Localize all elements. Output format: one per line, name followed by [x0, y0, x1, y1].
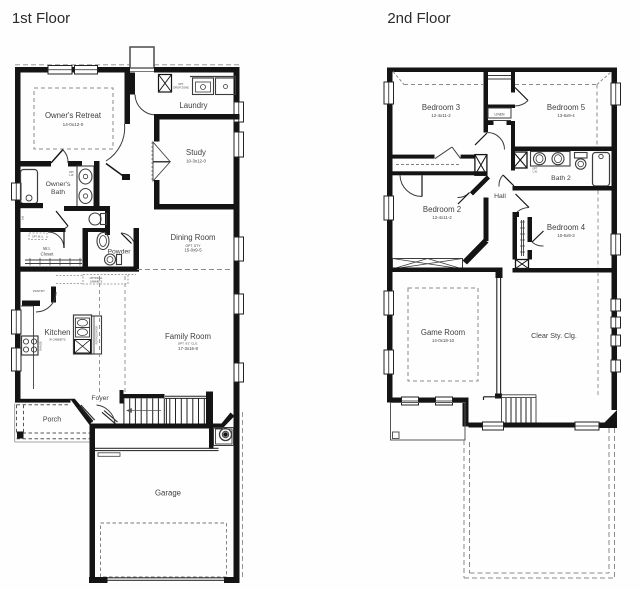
svg-text:2nd Floor: 2nd Floor — [387, 10, 450, 27]
svg-text:Clear Sty. Clg.: Clear Sty. Clg. — [531, 331, 577, 340]
svg-text:Owner's: Owner's — [46, 181, 71, 188]
svg-text:RANGE: RANGE — [39, 341, 43, 350]
svg-text:Study: Study — [186, 148, 206, 157]
svg-text:L.W.: L.W. — [533, 171, 538, 174]
svg-text:15-0x9-5: 15-0x9-5 — [184, 248, 202, 253]
svg-text:Bedroom 5: Bedroom 5 — [547, 103, 586, 112]
svg-text:Bedroom 3: Bedroom 3 — [422, 103, 460, 112]
svg-text:2x6: 2x6 — [22, 215, 25, 220]
svg-text:CABINETS: CABINETS — [90, 281, 103, 284]
svg-text:14-0x18-10: 14-0x18-10 — [432, 338, 455, 343]
svg-text:1st Floor: 1st Floor — [12, 10, 70, 27]
svg-text:14-0x12-0: 14-0x12-0 — [63, 122, 84, 127]
svg-text:Owner's Retreat: Owner's Retreat — [45, 111, 102, 120]
svg-text:Game Room: Game Room — [421, 328, 465, 337]
svg-text:OPT. W.I.L.: OPT. W.I.L. — [32, 236, 44, 239]
svg-text:Bedroom 2: Bedroom 2 — [423, 205, 461, 214]
svg-text:12-4x11-2: 12-4x11-2 — [432, 215, 452, 220]
svg-text:L.W.: L.W. — [69, 174, 74, 177]
svg-text:10-3x12-0: 10-3x12-0 — [186, 159, 206, 164]
svg-text:Bedroom 4: Bedroom 4 — [547, 223, 586, 232]
svg-text:W.I.: W.I. — [43, 246, 51, 251]
svg-text:Garage: Garage — [155, 489, 181, 498]
svg-text:Dining Room: Dining Room — [170, 233, 215, 242]
svg-text:Family Room: Family Room — [165, 332, 211, 341]
svg-text:Bath: Bath — [51, 189, 65, 196]
svg-text:DROP ZONE: DROP ZONE — [173, 86, 189, 90]
svg-text:17-3x16-8: 17-3x16-8 — [178, 346, 198, 351]
svg-text:13-6x9-4: 13-6x9-4 — [557, 113, 575, 118]
svg-text:W CABINETS: W CABINETS — [49, 338, 65, 342]
svg-text:10-6x9-3: 10-6x9-3 — [557, 233, 575, 238]
svg-text:LINEN: LINEN — [495, 113, 506, 117]
svg-text:Foyer: Foyer — [91, 395, 109, 402]
svg-text:OPT. 9'1" CLG.: OPT. 9'1" CLG. — [178, 342, 198, 346]
svg-text:OPT.: OPT. — [178, 82, 184, 86]
svg-text:Bath 2: Bath 2 — [551, 175, 571, 182]
svg-text:Closet: Closet — [40, 252, 54, 257]
svg-text:Hall: Hall — [494, 193, 506, 200]
svg-text:Laundry: Laundry — [179, 101, 207, 110]
svg-text:PANTRY: PANTRY — [33, 289, 45, 293]
svg-text:Powder: Powder — [107, 249, 131, 256]
svg-text:12-4x11-2: 12-4x11-2 — [431, 113, 451, 118]
svg-text:Kitchen: Kitchen — [44, 328, 70, 337]
svg-text:Porch: Porch — [43, 417, 61, 424]
svg-text:REFRIGERATOR: REFRIGERATOR — [96, 325, 99, 344]
